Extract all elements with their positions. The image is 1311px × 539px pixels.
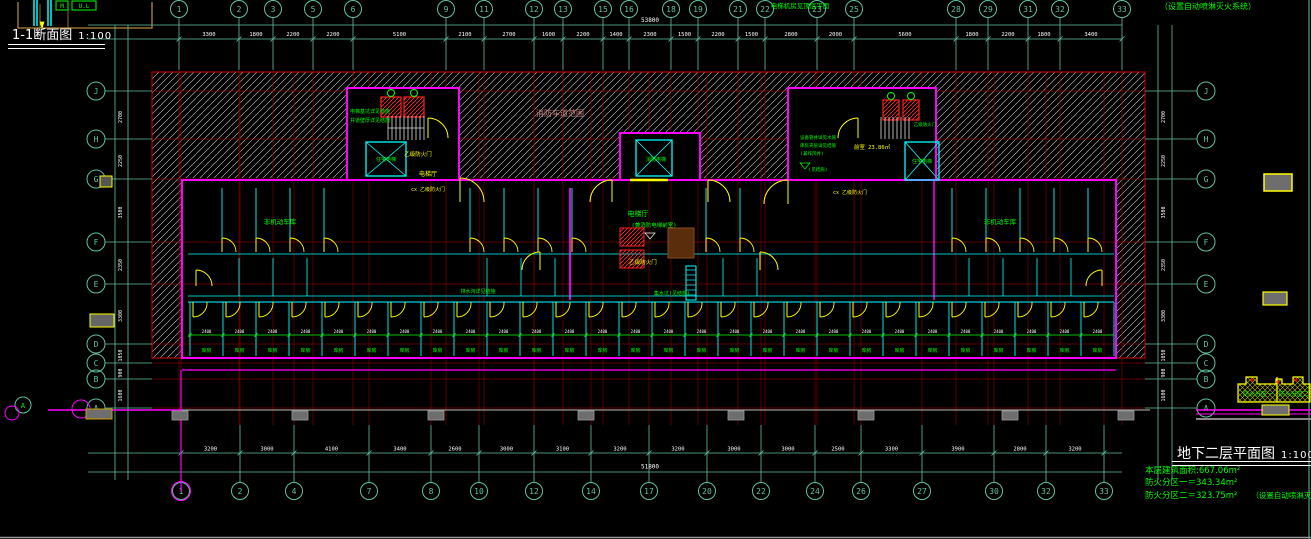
door-arc [1051, 302, 1065, 317]
grid-bubble-label: 19 [693, 5, 703, 14]
dim-text: 2400 [1060, 329, 1070, 334]
dim-text: 3000 [727, 447, 740, 453]
dim-text: 1800 [965, 32, 978, 38]
plan-title-text: 地下二层平面图 [1177, 446, 1275, 462]
margin-marker [90, 314, 114, 327]
grid-bubble-label: 3 [271, 5, 276, 14]
dim-text: 3500 [1161, 206, 1167, 218]
plan-label: 消防电梯 [646, 156, 666, 163]
grid-bubble-label: 27 [917, 487, 927, 496]
storage-room-label: 库房 [927, 347, 937, 354]
grid-bubble-label: F [94, 238, 99, 247]
plan-label: 前室 23.86㎡ [854, 143, 891, 151]
grid-bubble-label: B [1204, 375, 1209, 384]
dim-text: 2400 [598, 329, 608, 334]
storage-room-label: 库房 [465, 347, 475, 354]
grid-bubble-label: 28 [951, 5, 961, 14]
ground-post [1118, 411, 1134, 420]
grid-bubble-label: 5 [311, 5, 316, 14]
storage-room-label: 库房 [1092, 347, 1102, 354]
dim-text: 900 [118, 368, 124, 377]
grid-bubble-label: G [94, 175, 99, 184]
dim-text: 2400 [631, 329, 641, 334]
grid-bubble-label: 7 [367, 487, 372, 496]
door-arc [256, 238, 270, 252]
ground-post [858, 411, 874, 420]
dim-text: 2400 [697, 329, 707, 334]
plan-title-scale: 1:100 [1281, 450, 1311, 461]
plan-label: 乙级防火门 [629, 258, 657, 266]
plan-label: 非机动车库 [264, 217, 297, 226]
key-plan-marker [1262, 405, 1289, 415]
floor-plan-canvas[interactable]: MU.L123569111213151618192122232528293132… [0, 0, 1311, 539]
door-arc [259, 302, 273, 317]
key-plan-zone1-label: 防火分区一 [1243, 390, 1273, 398]
dim-text: 2400 [367, 329, 377, 334]
plan-label: 住宅电梯 [376, 156, 396, 163]
ground-post [578, 411, 594, 420]
dim-text: 2300 [643, 32, 656, 38]
door-arc [523, 302, 537, 317]
door-arc [1088, 238, 1102, 252]
plan-path [460, 178, 484, 202]
grid-bubble-label: 13 [558, 5, 568, 14]
hatch-band-left [152, 178, 182, 358]
grid-bubble-label: 11 [479, 5, 489, 14]
cad-drawing-sheet: MU.L123569111213151618192122232528293132… [0, 0, 1311, 539]
dim-text: 5100 [393, 32, 406, 38]
dim-text: 2600 [448, 447, 461, 453]
dim-text: 3000 [500, 447, 513, 453]
dim-text: 2400 [1027, 329, 1037, 334]
storage-room-label: 库房 [366, 347, 376, 354]
dim-text: 2400 [928, 329, 938, 334]
dim-text: 2200 [326, 32, 339, 38]
dim-text: 1800 [1037, 32, 1050, 38]
grid-bubble-label: 16 [624, 5, 634, 14]
grid-bubble-label: 22 [756, 487, 766, 496]
pump-unit [668, 228, 694, 258]
door-arc [1054, 238, 1068, 252]
dim-text: 2400 [499, 329, 509, 334]
plan-label: 住宅电梯 [912, 158, 932, 165]
dim-text: 2400 [763, 329, 773, 334]
grid-bubble-label: 31 [1023, 5, 1033, 14]
dim-text: 3300 [118, 310, 124, 322]
ground-post [428, 411, 444, 420]
dim-text: 2400 [235, 329, 245, 334]
grid-bubble-label: 6 [351, 5, 356, 14]
grid-bubble-label: 20 [702, 487, 712, 496]
dim-text: 2400 [664, 329, 674, 334]
grid-bubble-label: H [94, 135, 99, 144]
grid-bubble-label: 2 [237, 5, 242, 14]
plan-label: 非机动车库 [984, 217, 1017, 226]
storage-room-label: 库房 [564, 347, 574, 354]
storage-room-label: 库房 [399, 347, 409, 354]
dim-text: 3100 [556, 447, 569, 453]
door-arc [358, 302, 372, 317]
storage-room-label: 库房 [663, 347, 673, 354]
dim-text: 3400 [393, 447, 406, 453]
storage-room-label: 库房 [960, 347, 970, 354]
storage-room-label: 库房 [201, 347, 211, 354]
dim-text: 2350 [1161, 259, 1167, 271]
grid-bubble-label: 14 [586, 487, 596, 496]
door-arc [688, 302, 702, 317]
margin-marker [100, 176, 112, 187]
door-arc [952, 238, 966, 252]
plan-path [764, 180, 788, 204]
dim-text: 1050 [118, 349, 124, 361]
grid-bubble-label: 12 [529, 5, 539, 14]
grid-bubble-label: 33 [1099, 487, 1109, 496]
section-title-text: 1-1断面图 [12, 28, 72, 43]
dim-text: 3200 [613, 447, 626, 453]
plan-path [708, 180, 730, 202]
grid-bubble-label: 12 [529, 487, 539, 496]
ground-post [292, 411, 308, 420]
sprinkler-note-top: （设置自动喷淋灭火系统） [1160, 1, 1256, 12]
dim-text: 1500 [678, 32, 691, 38]
dim-text: 2400 [334, 329, 344, 334]
grid-bubble-label: H [1204, 135, 1209, 144]
dim-text: 2400 [796, 329, 806, 334]
grid-bubble-label: 9 [444, 5, 449, 14]
storage-room-label: 库房 [1059, 347, 1069, 354]
dim-text: 3000 [260, 447, 273, 453]
plan-label: 乙级防火门 [404, 150, 432, 158]
dim-text: 2200 [286, 32, 299, 38]
door-arc [886, 302, 900, 317]
door-arc [290, 238, 304, 252]
storage-room-label: 库房 [300, 347, 310, 354]
storage-room-label: 库房 [828, 347, 838, 354]
plan-path [522, 252, 540, 270]
dim-text: 2400 [565, 329, 575, 334]
dim-text: 2400 [202, 329, 212, 334]
door-arc [538, 238, 552, 252]
grid-bubble-label: E [94, 280, 99, 289]
smoke-vent [903, 100, 919, 120]
dim-text: 2800 [784, 32, 797, 38]
grid-bubble-label: 8 [429, 487, 434, 496]
door-arc [655, 302, 669, 317]
dim-text: 2100 [458, 32, 471, 38]
plan-label: 电梯基坑详见结施 [350, 108, 390, 115]
pump-box [620, 228, 644, 246]
dim-text: 2400 [301, 329, 311, 334]
grid-bubble-label: E [1204, 280, 1209, 289]
grid-bubble-label: 25 [849, 5, 859, 14]
dim-text: 5600 [898, 32, 911, 38]
door-arc [1084, 302, 1098, 317]
margin-marker [1263, 292, 1287, 305]
door-arc [787, 302, 801, 317]
plan-label: cx 乙级防火门 [833, 189, 867, 196]
dim-text: 2500 [831, 447, 844, 453]
door-arc [391, 302, 405, 317]
door-arc [740, 238, 754, 252]
plan-path [196, 270, 212, 286]
door-arc [504, 238, 518, 252]
grid-bubble-label: 21 [733, 5, 743, 14]
plan-path [760, 252, 778, 270]
grid-bubble-label: F [1204, 238, 1209, 247]
dim-text: 3400 [1084, 32, 1097, 38]
dim-text: 4100 [325, 447, 338, 453]
dim-text: 2400 [532, 329, 542, 334]
dim-text: 1600 [1161, 389, 1167, 401]
ground-marker [86, 409, 112, 419]
grid-bubble-label: B [94, 375, 99, 384]
dim-text: 2400 [433, 329, 443, 334]
grid-bubble-label: 10 [474, 487, 484, 496]
grid-bubble-label: 15 [598, 5, 608, 14]
storage-room-label: 库房 [630, 347, 640, 354]
door-arc [1020, 238, 1034, 252]
grid-bubble-label: 18 [666, 5, 676, 14]
dim-text: 2700 [1161, 111, 1167, 123]
fire-zone1-note: 防火分区一＝343.34m² [1145, 478, 1237, 489]
sprinkler-note-bottom: （设置自动喷淋灭火系统） [1251, 491, 1311, 500]
plan-label: (兼消防电梯前室) [631, 221, 676, 229]
section-title: 1-1断面图1:100 [12, 24, 112, 43]
dim-text: 2400 [730, 329, 740, 334]
dim-text: 2000 [829, 32, 842, 38]
corner-bubble-label: A [21, 402, 26, 410]
door-arc [1018, 302, 1032, 317]
dim-text: 2200 [711, 32, 724, 38]
door-arc [457, 302, 471, 317]
storage-room-label: 库房 [267, 347, 277, 354]
door-arc [985, 302, 999, 317]
grid-bubble-label: 30 [989, 487, 999, 496]
grid-bubble-label: C [1204, 359, 1209, 368]
storage-room-label: 库房 [795, 347, 805, 354]
dim-text: 2400 [862, 329, 872, 334]
dim-text: 2800 [1013, 447, 1026, 453]
grid-bubble-label: 4 [292, 487, 297, 496]
dim-text: 3200 [1068, 447, 1081, 453]
grid-bubble-label: 22 [760, 5, 770, 14]
hatch-band-right [1115, 178, 1145, 358]
door-arc [572, 238, 586, 252]
grid-bubble-label: 33 [1117, 5, 1127, 14]
door-arc [325, 302, 339, 317]
storage-room-label: 库房 [861, 347, 871, 354]
dim-text: 2400 [400, 329, 410, 334]
plan-label: 排水沟详见结施 [460, 288, 495, 295]
plan-label: 库房夹层详见结施 [800, 142, 836, 149]
dim-text: 1400 [609, 32, 622, 38]
ground-post [728, 411, 744, 420]
dim-text: 1600 [118, 389, 124, 401]
storage-room-label: 库房 [993, 347, 1003, 354]
dim-text: 2400 [466, 329, 476, 334]
area-note: 本层建筑面积:667.06m² [1145, 466, 1240, 477]
plan-title: 地下二层平面图1:100 [1177, 443, 1311, 463]
fire-zone2-value: 防火分区二＝323.75m² [1145, 491, 1237, 501]
dim-text: 1600 [542, 32, 555, 38]
dim-text: 3300 [202, 32, 215, 38]
door-arc [470, 238, 484, 252]
grid-bubble-label: G [1204, 175, 1209, 184]
storage-room-label: 库房 [531, 347, 541, 354]
grid-bubble-label: D [1204, 340, 1209, 349]
door-arc [952, 302, 966, 317]
section-title-scale: 1:100 [78, 31, 112, 42]
door-arc [324, 238, 338, 252]
storage-room-label: 库房 [696, 347, 706, 354]
grid-bubble-label: 1 [177, 5, 182, 14]
section-title-underline [8, 44, 105, 49]
ground-post [172, 411, 188, 420]
plan-label: 设备管井详见水施 [800, 134, 836, 141]
stair-tower-left [347, 88, 459, 180]
corner-bubble [5, 406, 19, 420]
dim-text: 3300 [885, 447, 898, 453]
plan-label: (见结施) [809, 166, 828, 173]
plan-label: cx 乙级防火门 [411, 186, 445, 193]
plan-path [590, 180, 612, 202]
dim-text: 2350 [118, 259, 124, 271]
dim-text: 2200 [576, 32, 589, 38]
grid-bubble-label: 29 [983, 5, 993, 14]
dim-text: 3300 [1161, 310, 1167, 322]
grid-bubble-label: 26 [856, 487, 866, 496]
storage-room-label: 库房 [333, 347, 343, 354]
dim-text: 2700 [502, 32, 515, 38]
dim-text: 1800 [249, 32, 262, 38]
storage-room-label: 库房 [729, 347, 739, 354]
key-plan-zone2-label: 防火分区二 [1279, 390, 1309, 398]
dim-text: 3000 [781, 447, 794, 453]
grid-bubble-label: 32 [1041, 487, 1051, 496]
storage-room-label: 库房 [498, 347, 508, 354]
storage-room-label: 库房 [894, 347, 904, 354]
grid-bubble-label: D [94, 340, 99, 349]
dim-total-top: 53800 [641, 17, 659, 24]
ground-post [1002, 411, 1018, 420]
door-arc [193, 302, 207, 317]
dim-text: 2250 [118, 155, 124, 167]
dim-text: 3900 [951, 447, 964, 453]
level-mark [645, 233, 655, 239]
margin-marker [1264, 174, 1292, 191]
dim-text: 1050 [1161, 349, 1167, 361]
storage-room-label: 库房 [1026, 347, 1036, 354]
dim-text: 2700 [118, 111, 124, 123]
grid-bubble-label: 32 [1055, 5, 1065, 14]
storage-room-label: 库房 [597, 347, 607, 354]
door-arc [706, 238, 720, 252]
dim-text: 3200 [671, 447, 684, 453]
door-arc [226, 302, 240, 317]
plan-path [1086, 270, 1102, 286]
door-arc [490, 302, 504, 317]
dim-text: 2400 [1093, 329, 1103, 334]
grid-bubble-label: A [1204, 404, 1209, 413]
grid-bubble-label: 17 [644, 487, 654, 496]
door-arc [853, 302, 867, 317]
dim-text: 2400 [895, 329, 905, 334]
smoke-vent [404, 97, 424, 117]
dim-text: 1500 [745, 32, 758, 38]
dim-text: 3200 [204, 447, 217, 453]
plan-label: 电梯机房见顶层平面 [771, 1, 830, 10]
dim-text: 2400 [829, 329, 839, 334]
dim-text: 3500 [118, 206, 124, 218]
storage-room-label: 库房 [234, 347, 244, 354]
section-fragment-tag: M [60, 3, 64, 10]
dim-total-bottom: 51800 [641, 464, 659, 471]
grid-bubble-label: J [1204, 87, 1209, 96]
door-arc [222, 238, 236, 252]
section-fragment-tag: U.L [79, 3, 90, 10]
fire-zone2-note: 防火分区二＝323.75m²（设置自动喷淋灭火系统） [1145, 490, 1311, 502]
dim-text: 900 [1161, 368, 1167, 377]
storage-room-label: 库房 [432, 347, 442, 354]
dim-text: 2400 [994, 329, 1004, 334]
plan-label: 乙级防火门 [914, 121, 937, 128]
plan-label: 集水坑(见结施) [654, 290, 690, 297]
plan-label: (兼作风井) [800, 150, 823, 157]
grid-bubble-label: 24 [810, 487, 820, 496]
plan-label: 电梯厅 [628, 209, 649, 218]
storage-room-label: 库房 [762, 347, 772, 354]
door-arc [820, 302, 834, 317]
door-arc [919, 302, 933, 317]
grid-bubble-label: C [94, 359, 99, 368]
dim-text: 2400 [268, 329, 278, 334]
plan-label: 消防车道范围 [536, 108, 584, 118]
plan-label: 电梯厅 [419, 170, 437, 178]
dim-text: 2200 [1001, 32, 1014, 38]
door-arc [721, 302, 735, 317]
grid-bubble-label: 2 [238, 487, 243, 496]
plan-label: 井道壁厚详见结施 [350, 117, 390, 124]
dim-text: 2250 [1161, 155, 1167, 167]
dim-text: 2400 [961, 329, 971, 334]
grid-bubble-label: J [94, 87, 99, 96]
key-plan-outline [1238, 377, 1310, 402]
